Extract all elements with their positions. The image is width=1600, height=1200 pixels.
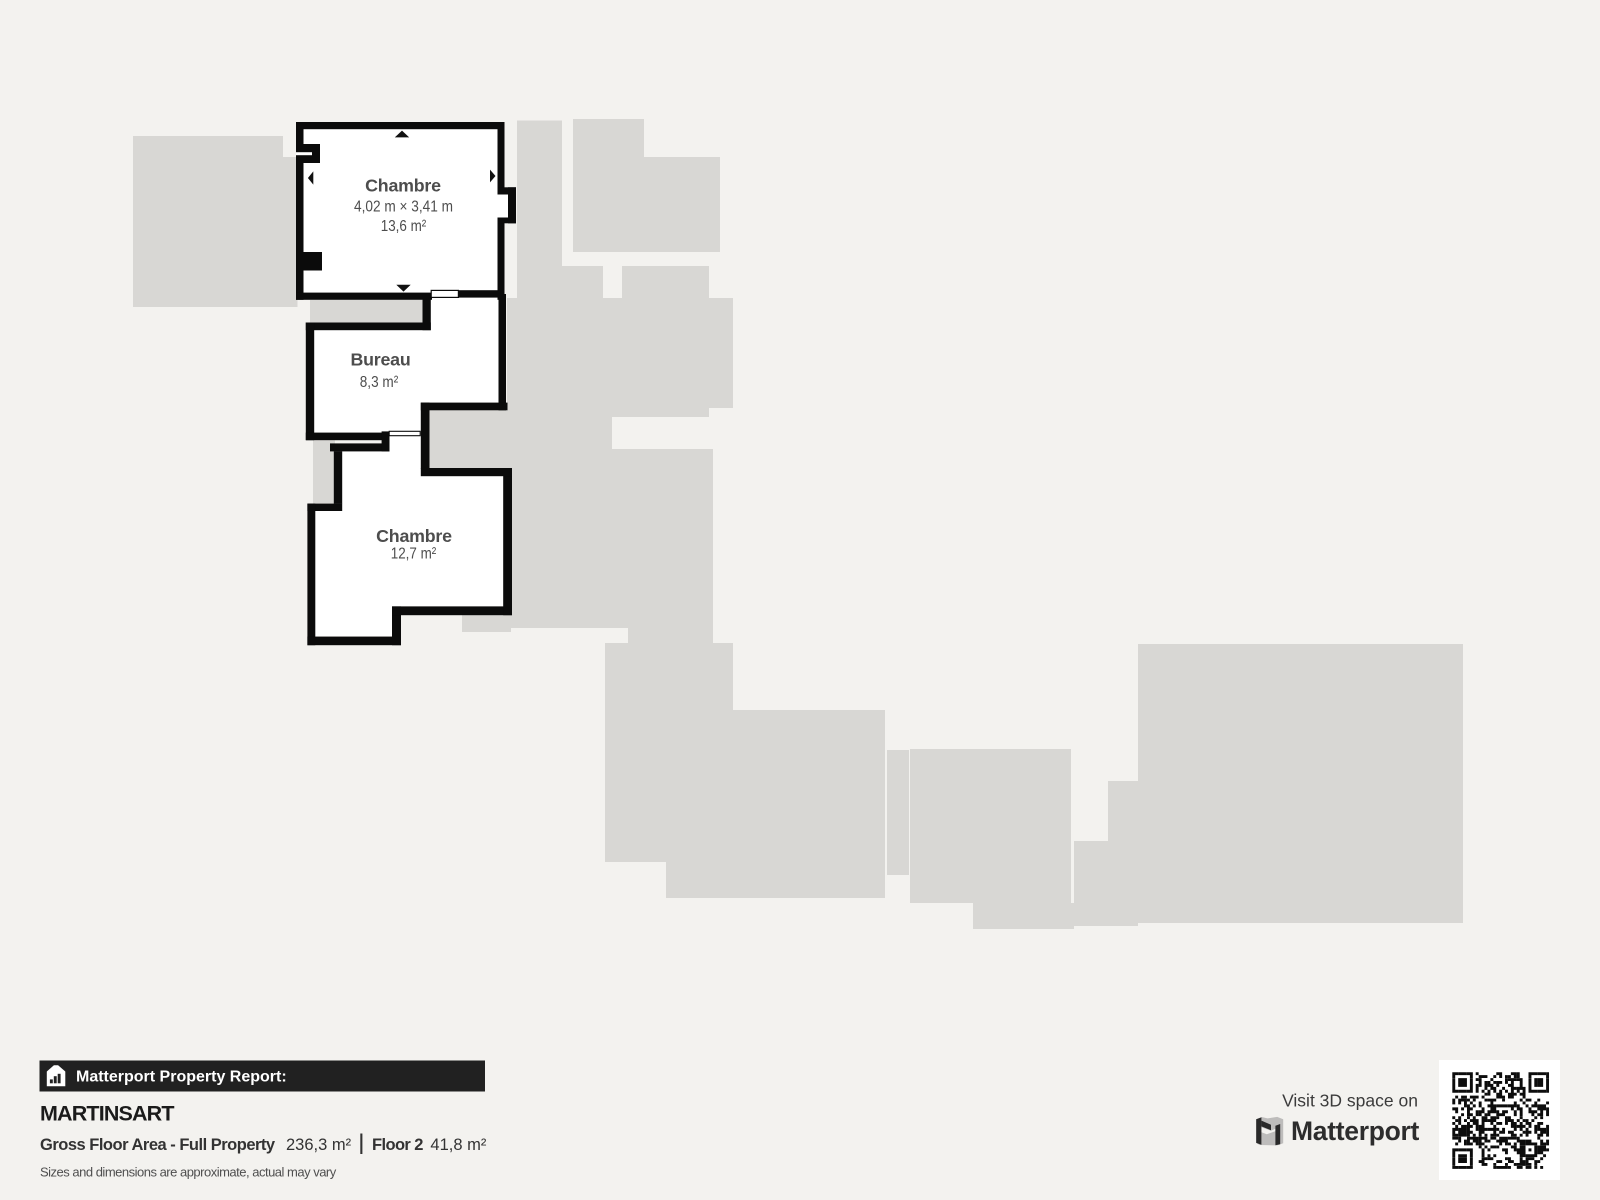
- svg-text:Visit 3D space on: Visit 3D space on: [1282, 1091, 1418, 1111]
- svg-text:Chambre: Chambre: [376, 526, 452, 546]
- svg-text:236,3 m²: 236,3 m²: [286, 1136, 352, 1154]
- svg-text:13,6 m²: 13,6 m²: [381, 218, 427, 235]
- svg-text:Chambre: Chambre: [365, 176, 441, 196]
- svg-text:4,02 m × 3,41 m: 4,02 m × 3,41 m: [354, 199, 453, 216]
- svg-text:Matterport Property Report:: Matterport Property Report:: [76, 1069, 287, 1086]
- svg-text:MARTINSART: MARTINSART: [40, 1102, 174, 1126]
- svg-text:41,8 m²: 41,8 m²: [430, 1136, 486, 1154]
- svg-text:Sizes and dimensions are appro: Sizes and dimensions are approximate, ac…: [40, 1165, 337, 1180]
- svg-text:12,7 m²: 12,7 m²: [391, 546, 437, 563]
- svg-text:Bureau: Bureau: [350, 350, 410, 370]
- svg-text:8,3 m²: 8,3 m²: [360, 374, 399, 391]
- svg-text:Gross Floor Area - Full Proper: Gross Floor Area - Full Property: [40, 1136, 276, 1154]
- svg-text:Matterport: Matterport: [1291, 1116, 1420, 1146]
- svg-text:Floor 2: Floor 2: [372, 1136, 423, 1154]
